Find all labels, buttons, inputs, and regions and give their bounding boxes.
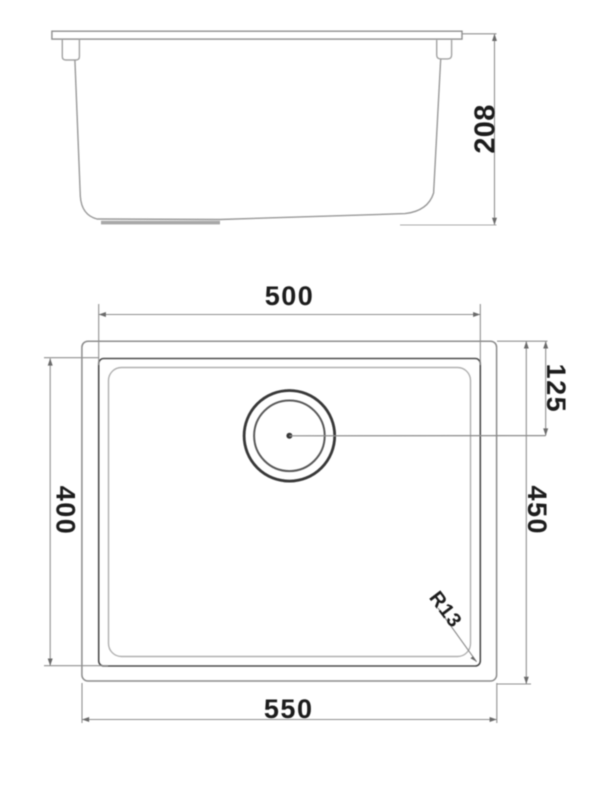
svg-text:550: 550 xyxy=(264,694,314,724)
svg-text:450: 450 xyxy=(522,486,552,536)
svg-text:400: 400 xyxy=(51,486,81,536)
svg-text:208: 208 xyxy=(470,104,502,153)
svg-text:R13: R13 xyxy=(425,587,466,632)
svg-text:125: 125 xyxy=(541,364,571,414)
svg-text:500: 500 xyxy=(265,281,315,311)
